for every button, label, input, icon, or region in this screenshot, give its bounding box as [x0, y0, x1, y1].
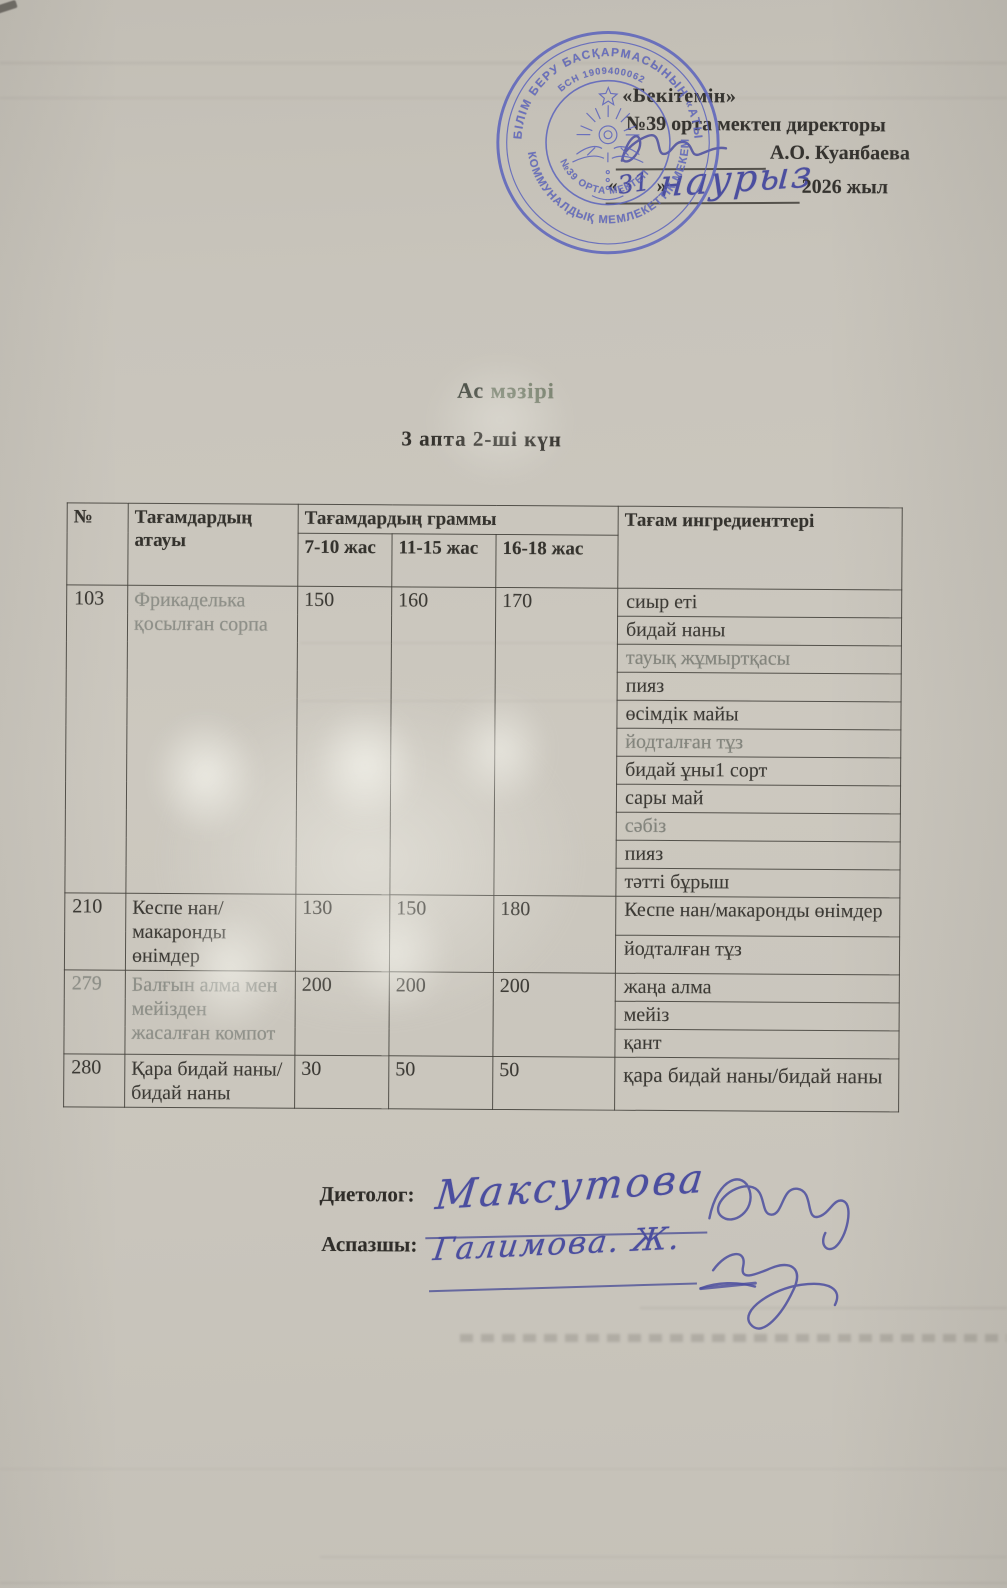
page-title-word2: мәзірі	[491, 378, 555, 403]
dietolog-label: Диетолог:	[319, 1182, 414, 1208]
cell-ing: жаңа алма	[615, 973, 899, 1003]
table-row: 210Кеспе нан/макаронды өнімдер130150180К…	[65, 893, 900, 937]
school-stamp: БІЛІМ БЕРУ БАСҚАРМАСЫНЫҢ «АТЫРАУ КОММУНА…	[489, 24, 726, 261]
col-header-age2: 11-15 жас	[392, 534, 496, 588]
cell-num: 280	[64, 1054, 125, 1107]
cell-ing: өсімдік майы	[617, 700, 901, 730]
document-content: «Бекітемін» №39 орта мектеп директоры А.…	[0, 0, 1007, 1588]
cell-num: 279	[64, 970, 126, 1054]
cell-name: Кеспе нан/макаронды өнімдер	[125, 893, 295, 971]
menu-table-wrap: № Тағамдардың атауы Тағамдардың граммы Т…	[63, 502, 903, 1112]
cell-gram: 130	[295, 894, 389, 972]
cell-name: Балғын алма мен мейізден жасалған компот	[125, 970, 296, 1055]
stamp-school-text: №39 ОРТА МЕКТЕП	[557, 157, 652, 197]
cell-ing: тауық жұмыртқасы	[617, 644, 901, 674]
cell-name: Қара бидай наны/бидай наны	[125, 1054, 295, 1108]
cell-ing: қара бидай наны/бидай наны	[615, 1057, 899, 1112]
cell-ing: сары май	[616, 784, 900, 814]
col-header-ingredients: Тағам ингредиенттері	[618, 506, 902, 590]
cell-num: 210	[64, 893, 125, 970]
cell-name: Фрикаделька қосылған сорпа	[126, 585, 298, 894]
page-title-word1: Ас	[457, 378, 484, 403]
cell-gram: 180	[493, 895, 615, 973]
cell-gram: 150	[296, 586, 392, 895]
cell-ing: пияз	[617, 672, 901, 702]
cell-ing: сәбіз	[616, 812, 900, 842]
cell-ing: йодталған тұз	[615, 935, 899, 975]
cell-gram: 200	[389, 972, 494, 1057]
cell-gram: 50	[493, 1056, 615, 1110]
cell-gram: 170	[494, 587, 618, 896]
col-header-age3: 16-18 жас	[496, 534, 618, 588]
cook-signature-flourish	[616, 1226, 887, 1388]
cell-gram: 160	[390, 587, 496, 896]
page-subtitle: 3 апта 2-ші күн	[0, 424, 985, 455]
col-header-num: №	[67, 503, 128, 585]
document-photo: «Бекітемін» №39 орта мектеп директоры А.…	[0, 0, 1007, 1588]
cell-ing: бидай наны	[617, 616, 901, 646]
cell-ing: сиыр еті	[618, 588, 902, 618]
menu-table-body: 103Фрикаделька қосылған сорпа150160170си…	[64, 585, 902, 1112]
cell-gram: 200	[295, 971, 390, 1056]
cell-ing: қант	[615, 1029, 899, 1059]
table-header-row-1: № Тағамдардың атауы Тағамдардың граммы Т…	[67, 503, 902, 537]
cell-gram: 200	[493, 972, 616, 1057]
stamp-bin-text: БСН 1909400062	[556, 65, 647, 94]
stamp-sun-rays	[576, 105, 639, 162]
cell-ing: йодталған тұз	[617, 728, 901, 758]
table-row: 279Балғын алма мен мейізден жасалған ком…	[64, 970, 899, 1003]
col-header-name: Тағамдардың атауы	[128, 503, 298, 586]
cell-ing: Кеспе нан/макаронды өнімдер	[616, 896, 900, 936]
cell-ing: мейіз	[615, 1001, 899, 1031]
menu-table: № Тағамдардың атауы Тағамдардың граммы Т…	[63, 502, 903, 1112]
table-row: 280Қара бидай наны/бидай наны305050қара …	[64, 1054, 899, 1112]
col-header-grams: Тағамдардың граммы	[298, 504, 618, 535]
page-title: Ас мәзірі	[2, 375, 1007, 407]
table-row: 103Фрикаделька қосылған сорпа150160170си…	[67, 585, 902, 618]
cell-gram: 30	[295, 1055, 389, 1109]
cell-ing: тәтті бұрыш	[616, 868, 900, 898]
cell-ing: пияз	[616, 840, 900, 870]
cell-gram: 150	[389, 895, 493, 973]
cell-num: 103	[65, 585, 128, 893]
cook-label: Аспазшы:	[321, 1232, 417, 1258]
cell-ing: бидай ұны1 сорт	[617, 756, 901, 786]
col-header-age1: 7-10 жас	[298, 533, 392, 587]
cell-gram: 50	[389, 1056, 493, 1110]
year-text: 2026 жыл	[802, 176, 888, 200]
